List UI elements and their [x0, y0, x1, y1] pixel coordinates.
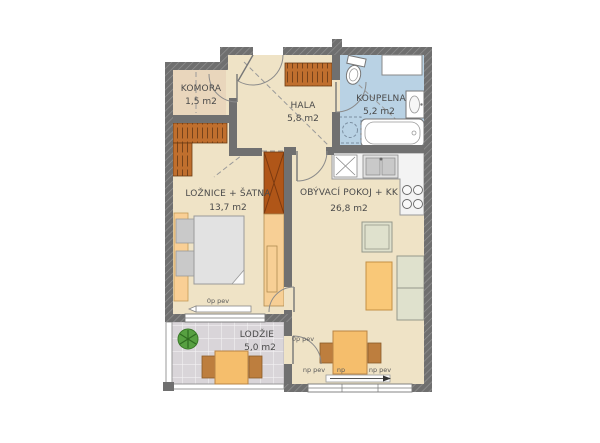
room-koupelna-area: 5,2 m2 — [363, 107, 395, 117]
hall-wardrobe — [285, 63, 332, 86]
window-label: np pev — [369, 366, 391, 374]
kitchen-sink — [363, 155, 398, 178]
room-komora-label: KOMORA — [181, 84, 222, 94]
shaft-niche — [382, 55, 422, 75]
room-hala-label: HALA — [290, 101, 316, 111]
bedroom-radiator — [189, 306, 251, 312]
window-label: 0p pev — [207, 297, 229, 305]
living-window — [308, 384, 412, 392]
loggia-chair — [249, 356, 262, 378]
fridge-icon — [334, 155, 357, 177]
dining-chair — [320, 343, 333, 363]
bedroom-window — [185, 314, 265, 322]
sofa — [397, 256, 424, 320]
room-komora-area: 1,5 m2 — [185, 97, 217, 107]
room-obyvaci-area: 26,8 m2 — [330, 204, 367, 214]
room-hala-area: 5,8 m2 — [287, 114, 319, 124]
loggia-chair — [202, 356, 215, 378]
bedroom-wardrobe — [264, 152, 284, 306]
plant-icon — [178, 329, 198, 349]
room-lodzie-area: 5,0 m2 — [244, 343, 276, 353]
nightstand — [176, 251, 194, 276]
room-loznice-area: 13,7 m2 — [209, 203, 246, 213]
living-door-track — [326, 375, 391, 382]
bathtub — [361, 119, 424, 147]
room-obyvaci-label: OBÝVACÍ POKOJ + KK — [300, 186, 399, 198]
room-koupelna-label: KOUPELNA — [356, 94, 406, 104]
floor-plan: KOMORA 1,5 m2 HALA 5,8 m2 KOUPELNA 5,2 m… — [0, 0, 600, 443]
room-loznice-label: LOŽNICE + ŠATNA — [185, 187, 271, 199]
armchair — [362, 222, 392, 252]
dining-chair — [368, 343, 381, 363]
window-label: np — [337, 366, 345, 374]
floor-plan-svg: KOMORA 1,5 m2 HALA 5,8 m2 KOUPELNA 5,2 m… — [0, 0, 600, 443]
nightstand — [176, 219, 194, 243]
window-label: np pev — [303, 366, 325, 374]
room-lodzie-label: LODŽIE — [240, 328, 275, 340]
washbasin — [406, 91, 424, 118]
side-table — [366, 262, 392, 310]
window-label: 0p pev — [292, 335, 314, 343]
